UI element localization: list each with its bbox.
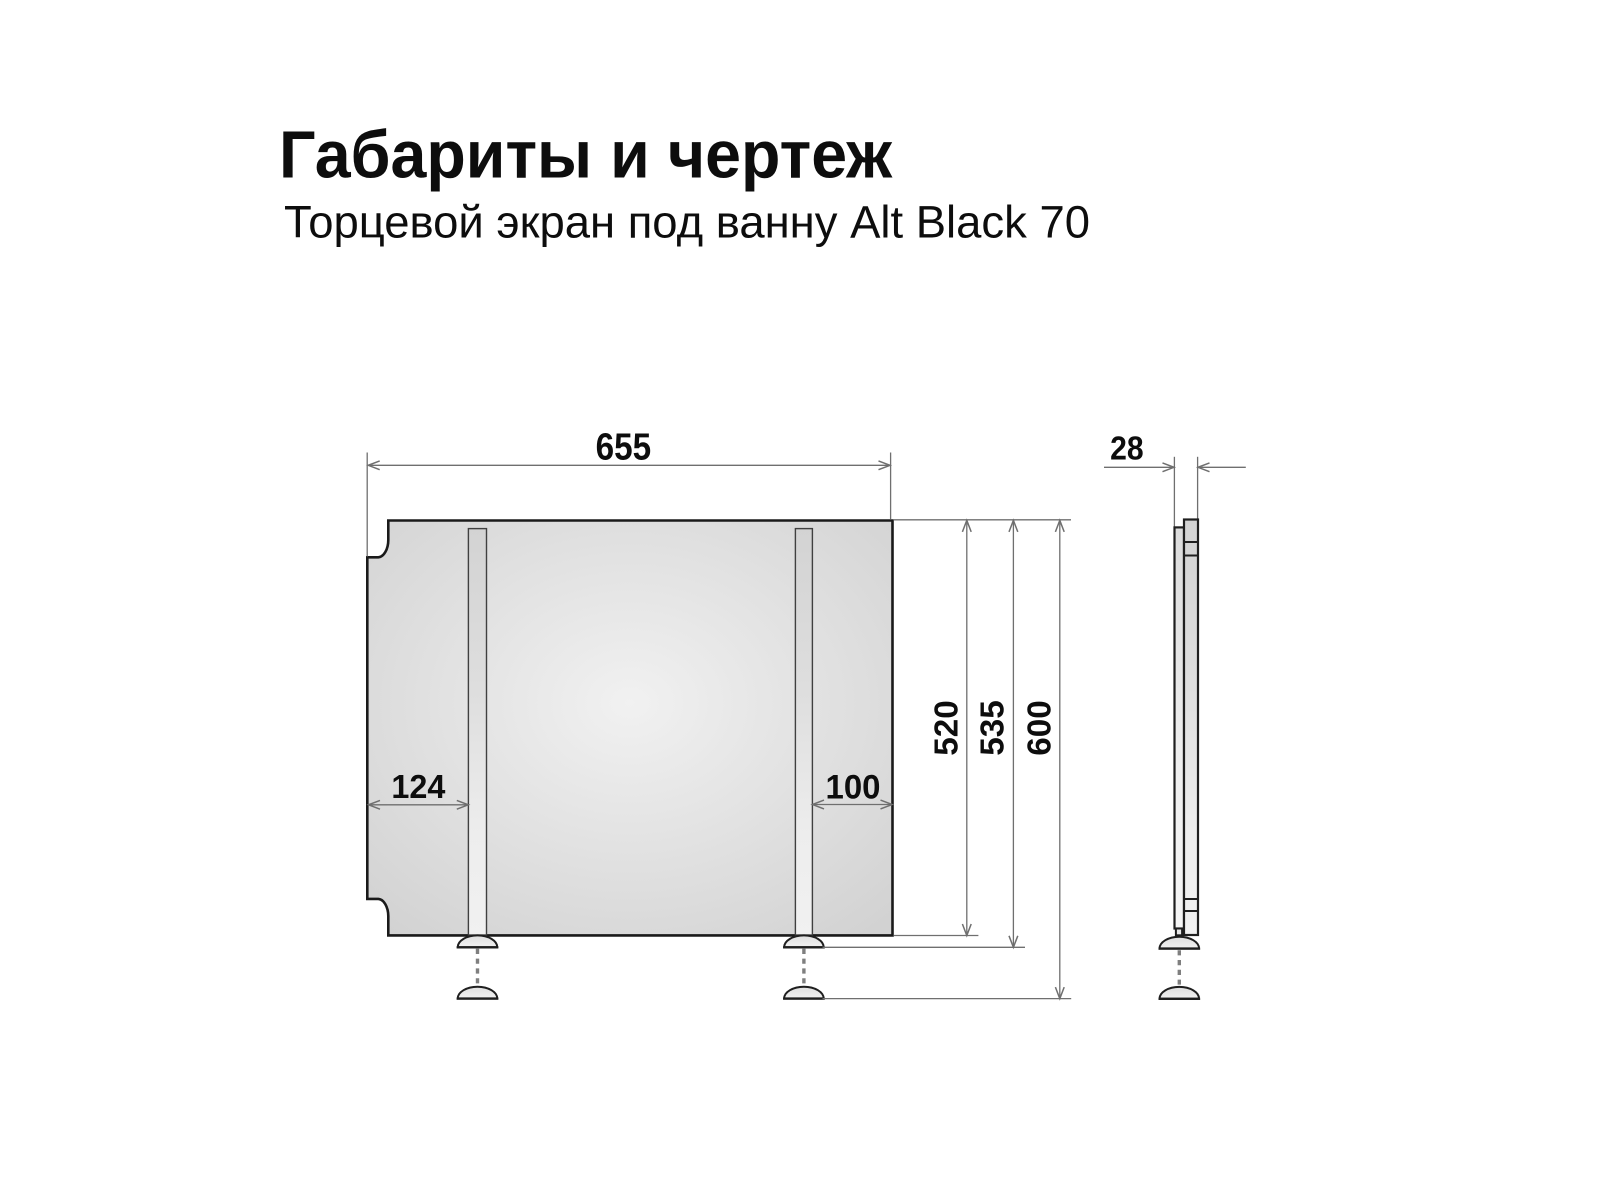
- svg-text:520: 520: [928, 700, 965, 756]
- svg-text:Габариты и чертеж: Габариты и чертеж: [279, 118, 893, 193]
- svg-text:124: 124: [391, 769, 445, 806]
- svg-text:100: 100: [826, 769, 881, 807]
- svg-text:Торцевой экран под ванну Alt B: Торцевой экран под ванну Alt Black 70: [284, 197, 1090, 248]
- svg-text:655: 655: [596, 427, 652, 469]
- svg-text:600: 600: [1021, 700, 1058, 756]
- svg-text:28: 28: [1110, 431, 1144, 468]
- svg-text:535: 535: [974, 700, 1011, 756]
